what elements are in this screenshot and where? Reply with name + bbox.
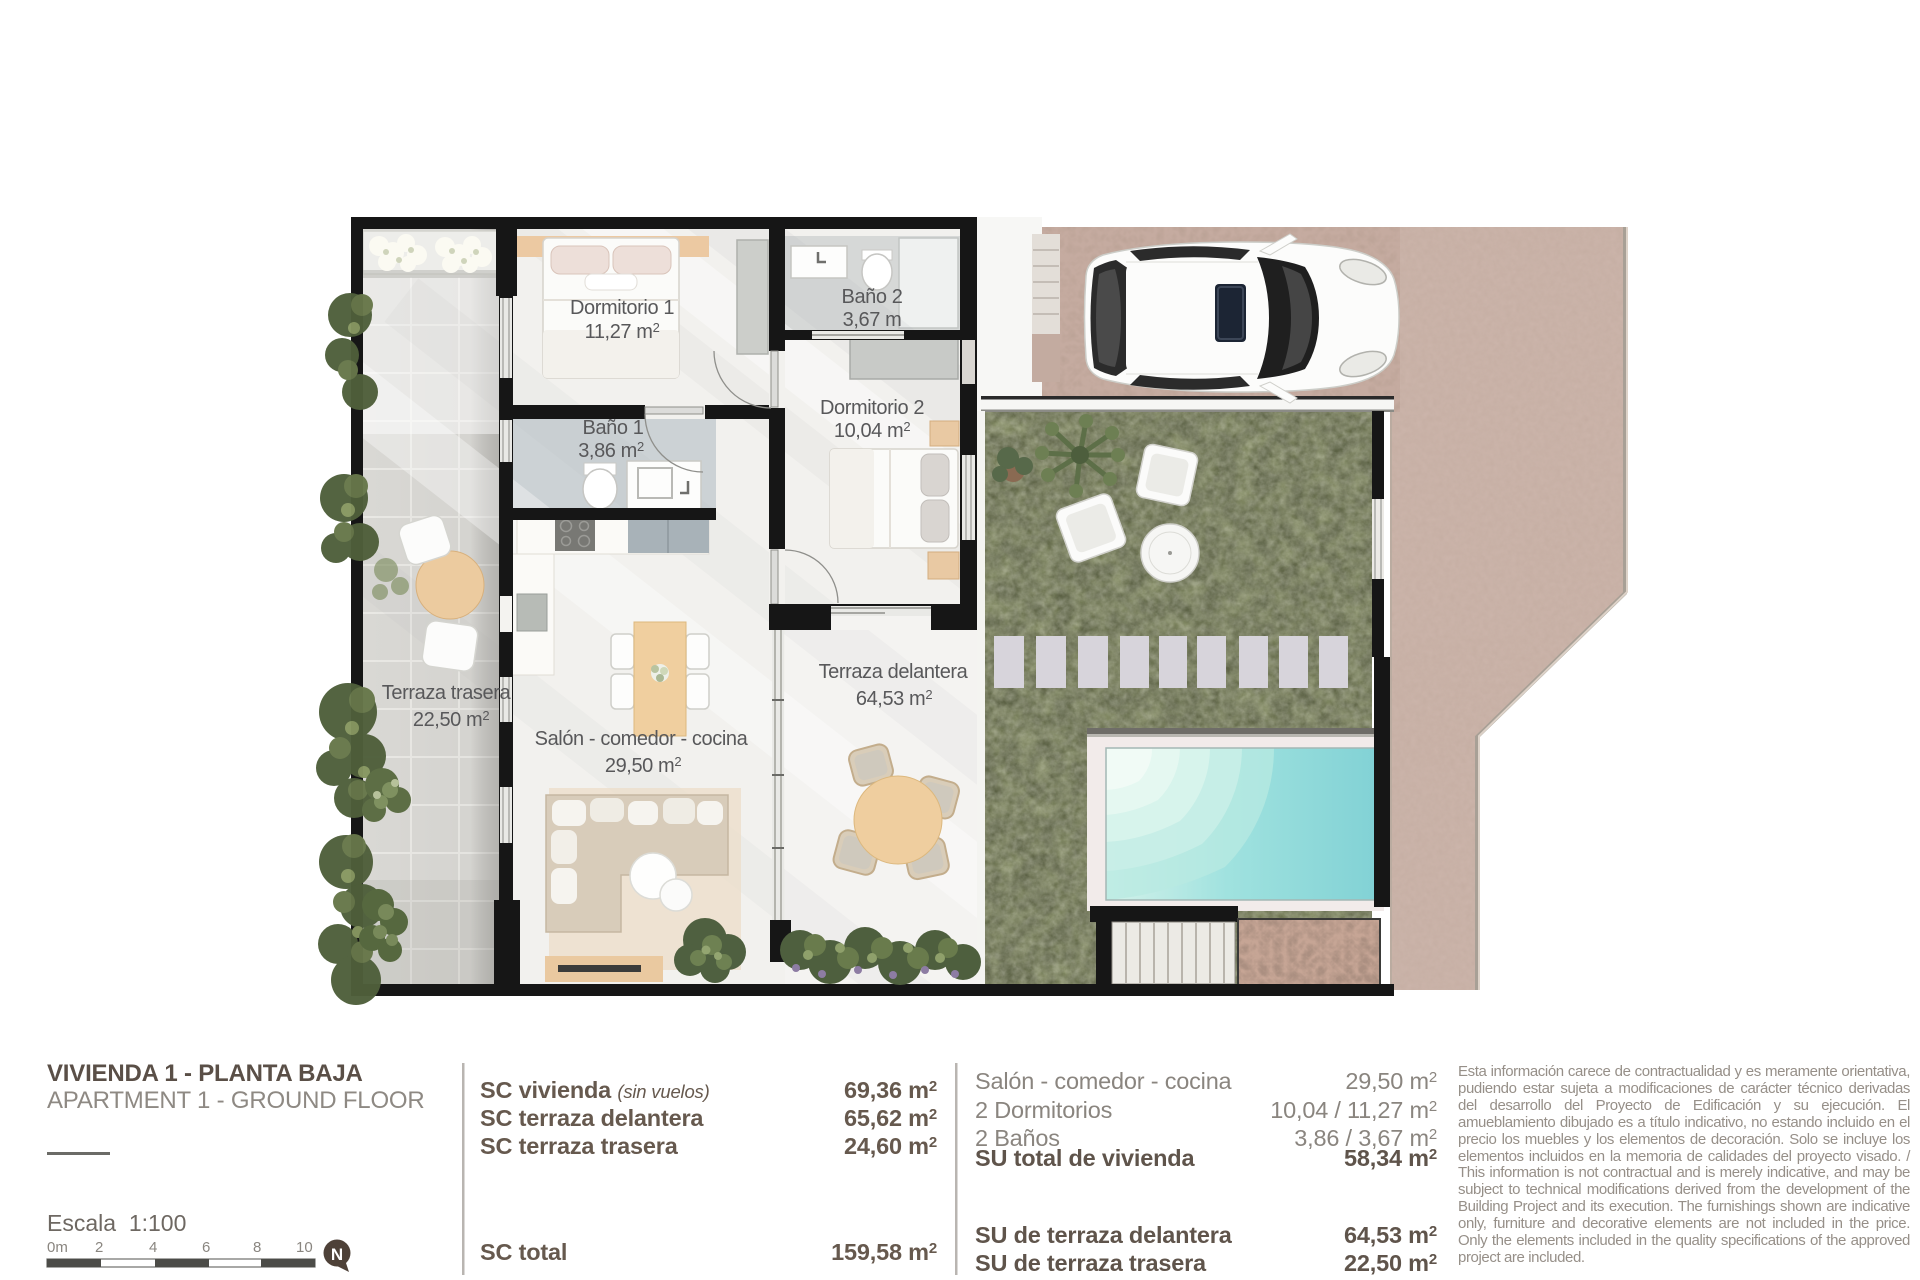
- svg-text:Baño 1: Baño 1: [583, 417, 644, 439]
- svg-text:24,60 m2: 24,60 m2: [844, 1133, 937, 1159]
- svg-text:10,04 m2: 10,04 m2: [834, 419, 910, 442]
- svg-text:10,04 / 11,27 m2: 10,04 / 11,27 m2: [1270, 1097, 1437, 1123]
- svg-text:SU de terraza trasera: SU de terraza trasera: [975, 1250, 1207, 1276]
- svg-text:64,53 m2: 64,53 m2: [856, 687, 932, 710]
- svg-text:2: 2: [95, 1239, 103, 1256]
- svg-text:Baño 2: Baño 2: [842, 286, 903, 308]
- svg-text:Terraza delantera: Terraza delantera: [819, 661, 969, 683]
- svg-text:29,50 m2: 29,50 m2: [1345, 1068, 1437, 1094]
- svg-text:Salón - comedor - cocina: Salón - comedor - cocina: [535, 728, 749, 750]
- svg-text:SU total de vivienda: SU total de vivienda: [975, 1145, 1195, 1171]
- svg-text:Dormitorio 1: Dormitorio 1: [570, 297, 674, 319]
- svg-text:6: 6: [202, 1239, 210, 1256]
- svg-text:SC vivienda (sin vuelos): SC vivienda (sin vuelos): [480, 1077, 710, 1103]
- svg-text:SC total: SC total: [480, 1239, 567, 1265]
- svg-text:VIVIENDA 1 - PLANTA BAJA: VIVIENDA 1 - PLANTA BAJA: [47, 1060, 363, 1087]
- svg-text:SU de terraza delantera: SU de terraza delantera: [975, 1222, 1233, 1248]
- svg-text:11,27 m2: 11,27 m2: [585, 320, 660, 343]
- svg-text:Salón - comedor - cocina: Salón - comedor - cocina: [975, 1068, 1233, 1094]
- svg-text:N: N: [331, 1245, 343, 1264]
- svg-text:4: 4: [149, 1239, 157, 1256]
- svg-text:APARTMENT 1 - GROUND FLOOR: APARTMENT 1 - GROUND FLOOR: [47, 1087, 425, 1114]
- svg-text:58,34 m2: 58,34 m2: [1344, 1145, 1437, 1171]
- svg-text:8: 8: [253, 1239, 261, 1256]
- svg-text:22,50 m2: 22,50 m2: [1344, 1250, 1437, 1276]
- svg-text:Escala 1:100: Escala 1:100: [47, 1210, 186, 1236]
- svg-text:3,86 m2: 3,86 m2: [578, 439, 644, 462]
- svg-text:65,62 m2: 65,62 m2: [844, 1105, 937, 1131]
- svg-text:22,50 m2: 22,50 m2: [413, 708, 489, 731]
- svg-text:Terraza trasera: Terraza trasera: [382, 682, 512, 704]
- svg-text:SC terraza trasera: SC terraza trasera: [480, 1133, 679, 1159]
- svg-text:69,36 m2: 69,36 m2: [844, 1077, 937, 1103]
- svg-text:SC terraza delantera: SC terraza delantera: [480, 1105, 704, 1131]
- svg-text:29,50 m2: 29,50 m2: [605, 754, 681, 777]
- svg-text:0m: 0m: [47, 1239, 68, 1256]
- svg-text:159,58 m2: 159,58 m2: [831, 1239, 937, 1265]
- svg-text:10: 10: [296, 1239, 313, 1256]
- svg-text:2 Dormitorios: 2 Dormitorios: [975, 1097, 1112, 1123]
- svg-text:64,53 m2: 64,53 m2: [1344, 1222, 1437, 1248]
- svg-text:Dormitorio 2: Dormitorio 2: [820, 397, 924, 419]
- svg-text:3,67 m: 3,67 m: [843, 309, 902, 331]
